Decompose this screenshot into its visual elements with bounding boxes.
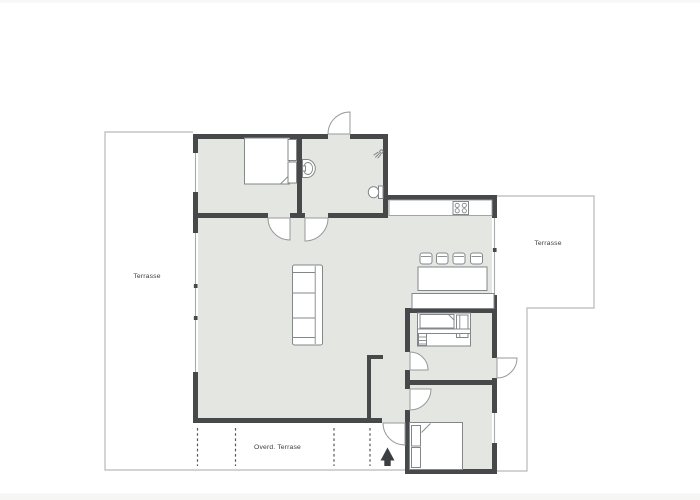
terrace-outline-right [497, 196, 594, 471]
kitchen-counter [389, 200, 492, 216]
sofa [293, 265, 323, 345]
sink [303, 160, 316, 178]
terrace-left-label: Terrasse [117, 274, 177, 281]
floor-plan-drawing [0, 0, 700, 500]
terrace-right-label: Terrasse [518, 241, 578, 248]
floor-plan-page: Terrasse Terrasse Overd. Terrase [0, 0, 700, 500]
stove [453, 202, 469, 215]
bed-double-top [245, 138, 290, 184]
bed-double-bottom [410, 423, 463, 470]
sideboard [412, 294, 494, 309]
dining-table [418, 267, 487, 291]
toilet [368, 186, 383, 199]
covered-terrace-label: Overd. Terrase [237, 445, 318, 452]
entrance-door-arc [328, 112, 350, 134]
north-arrow-icon [381, 448, 395, 467]
terrace-door-arc [383, 423, 405, 445]
bunk-bed [418, 313, 471, 346]
side-entry-door-arc [497, 358, 517, 378]
